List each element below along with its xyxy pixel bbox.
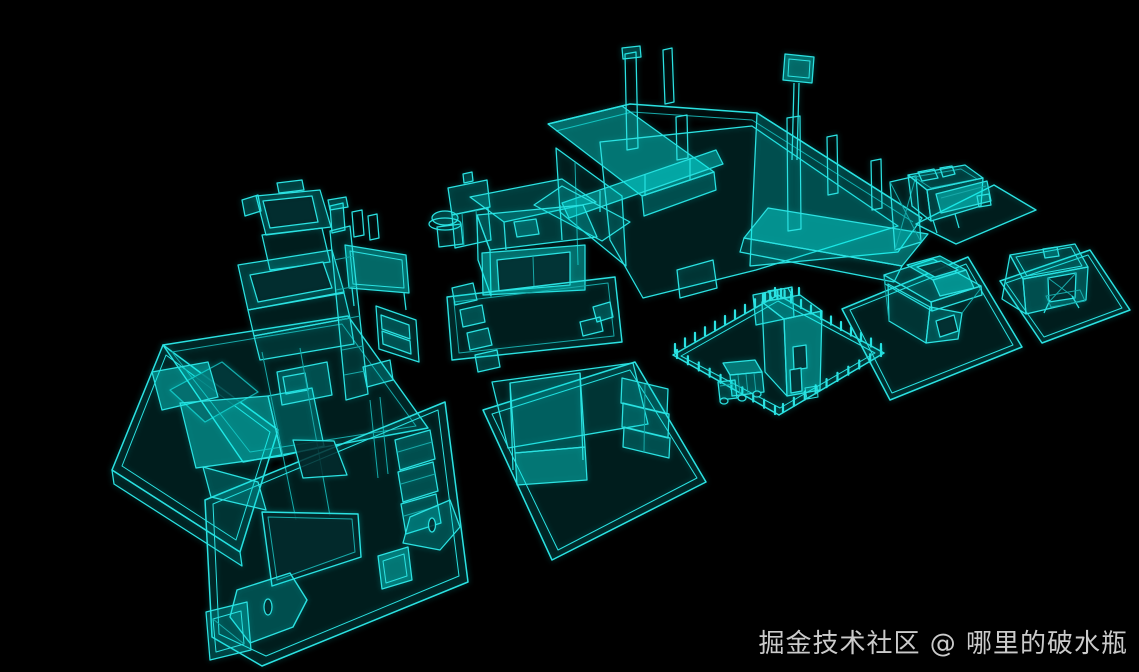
watermark-text: 掘金技术社区 @ 哪里的破水瓶 bbox=[758, 629, 1128, 659]
depot-plot bbox=[1000, 244, 1130, 343]
scene-viewport[interactable]: 掘金技术社区 @ 哪里的破水瓶 bbox=[0, 0, 1139, 672]
wireframe-canvas[interactable] bbox=[0, 0, 1139, 672]
bench-platform bbox=[908, 165, 1036, 244]
watermark: 掘金技术社区 @ 哪里的破水瓶 bbox=[758, 623, 1128, 660]
tower-complex bbox=[112, 180, 468, 666]
warehouse-plot bbox=[483, 362, 706, 560]
